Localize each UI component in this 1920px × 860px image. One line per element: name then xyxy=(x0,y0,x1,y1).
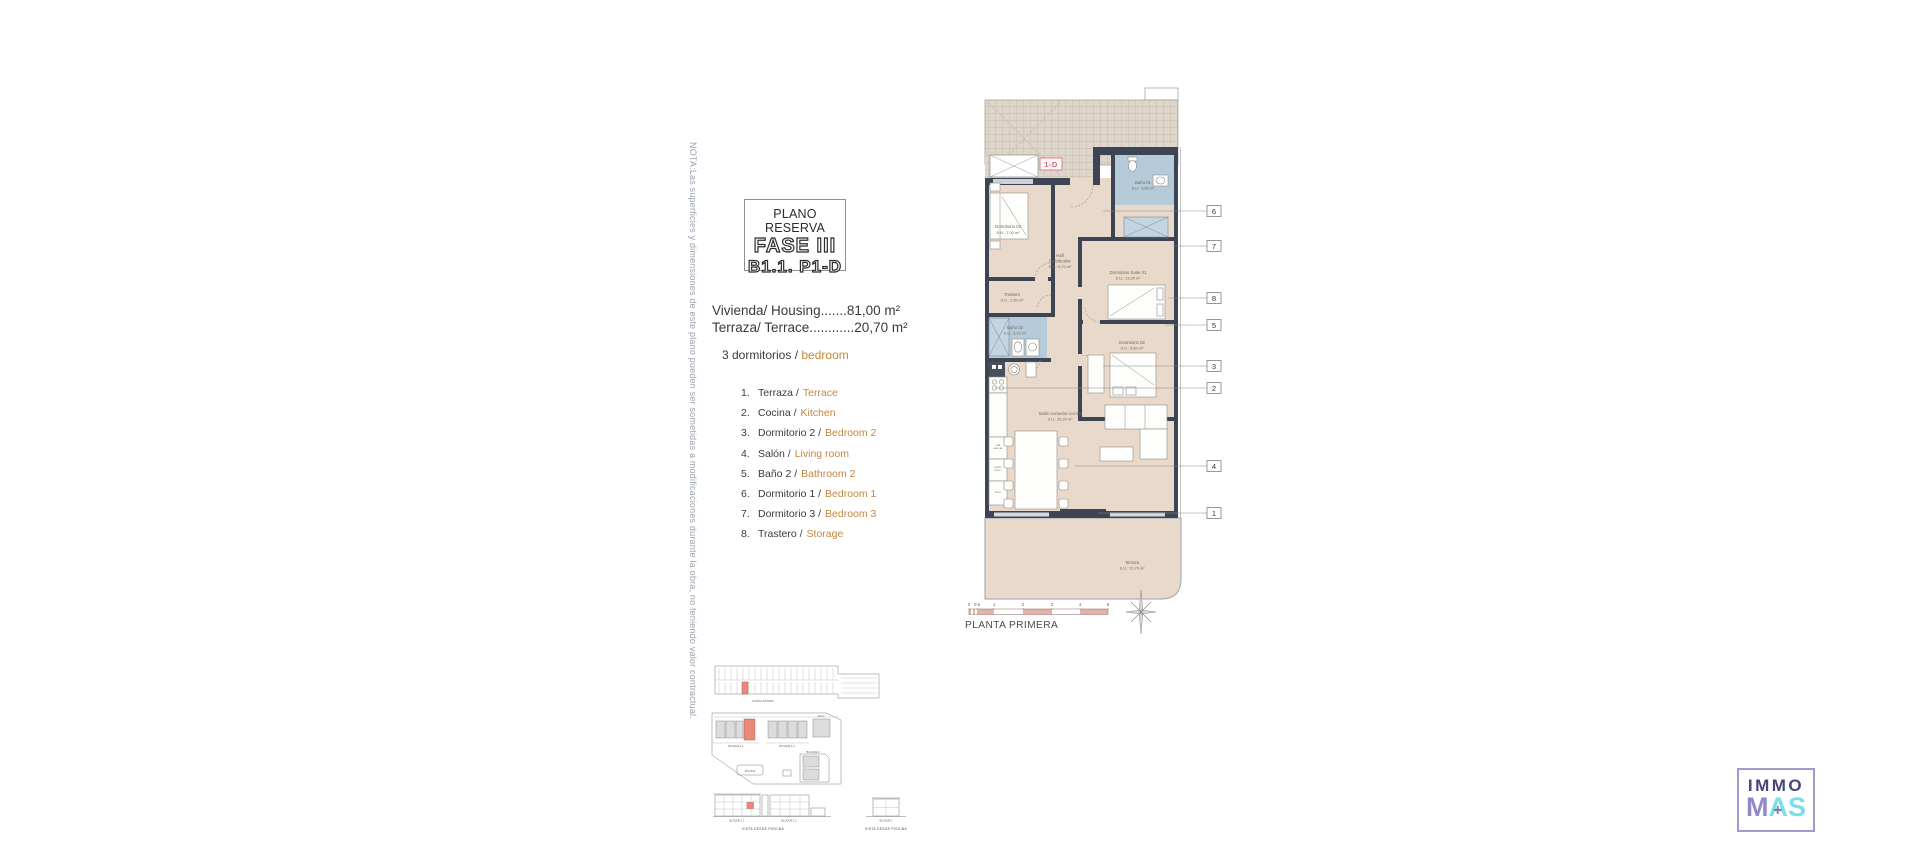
legend-item: 7.Dormitorio 3 /Bedroom 3 xyxy=(741,508,876,528)
svg-text:S.U.: 7,00 m²: S.U.: 7,00 m² xyxy=(997,230,1021,235)
svg-text:LAVA: LAVA xyxy=(996,444,1001,447)
svg-text:1: 1 xyxy=(993,602,996,607)
svg-text:0: 0 xyxy=(968,602,971,607)
svg-text:6: 6 xyxy=(1212,207,1216,216)
svg-text:Trastero: Trastero xyxy=(1004,292,1020,297)
svg-text:3: 3 xyxy=(1212,362,1216,371)
disclaimer-note: NOTA:Las superficies y dimensiones de es… xyxy=(688,142,698,742)
svg-text:Baño 02: Baño 02 xyxy=(1007,325,1024,330)
svg-text:HORNO: HORNO xyxy=(994,467,1002,469)
svg-text:Terraza: Terraza xyxy=(1125,560,1140,565)
logo-plus-icon: + xyxy=(1773,798,1782,823)
svg-text:Dormitorio 02: Dormitorio 02 xyxy=(1119,340,1145,345)
svg-text:S.U.: 13,20 m²: S.U.: 13,20 m² xyxy=(1115,276,1141,281)
title-block: PLANO RESERVA FASE III B1.1. P1-D xyxy=(744,199,846,271)
legend-item: 1.Terraza /Terrace xyxy=(741,387,876,407)
svg-text:2: 2 xyxy=(1022,602,1025,607)
svg-text:VISTA DESDE PISCINA: VISTA DESDE PISCINA xyxy=(865,827,908,831)
immomas-logo: IMMO MAS + xyxy=(1737,768,1815,832)
svg-text:S.U.: 2,50 m²: S.U.: 2,50 m² xyxy=(1001,298,1025,303)
svg-text:BLOQUE 1.1: BLOQUE 1.1 xyxy=(728,744,744,748)
bedroom2-furniture xyxy=(1088,353,1156,397)
svg-text:Hall: Hall xyxy=(1056,253,1063,258)
elevation-block-2: BLOQUE 2 VISTA DESDE PISCINA xyxy=(865,798,908,831)
legend-item: 6.Dormitorio 1 /Bedroom 1 xyxy=(741,488,876,508)
room-legend: 1.Terraza /Terrace 2.Cocina /Kitchen 3.D… xyxy=(741,387,876,549)
svg-text:BLOQUE 2: BLOQUE 2 xyxy=(880,819,894,823)
svg-text:BLOQUE 1.2: BLOQUE 1.2 xyxy=(781,819,797,823)
scale-bar: 0 0.5 1 2 3 4 5 xyxy=(968,602,1110,615)
svg-text:MICRO: MICRO xyxy=(995,470,1002,472)
svg-text:Dormitorio 03: Dormitorio 03 xyxy=(995,224,1021,229)
svg-text:BLOQUE 2: BLOQUE 2 xyxy=(807,750,821,754)
floor-label: PLANTA PRIMERA xyxy=(965,620,1058,631)
svg-text:S.U.: 3,10 m²: S.U.: 3,10 m² xyxy=(1004,331,1028,336)
svg-text:2: 2 xyxy=(1212,384,1216,393)
svg-text:3: 3 xyxy=(1051,602,1054,607)
svg-text:S.U.: 8,60 m²: S.U.: 8,60 m² xyxy=(1121,346,1145,351)
elevation-blocks-1: BLOQUE 1.1 BLOQUE 1.2 VISTA DESDE PISCIN… xyxy=(713,794,831,831)
unit-tag: 1-D xyxy=(1040,158,1062,170)
svg-text:1: 1 xyxy=(1212,509,1216,518)
svg-text:PISCINA: PISCINA xyxy=(745,769,756,773)
suite-furniture xyxy=(1108,285,1165,319)
legend-item: 4.Salón /Living room xyxy=(741,448,876,468)
bedrooms-line: 3 dormitorios / bedroom xyxy=(722,348,849,362)
svg-text:4: 4 xyxy=(1079,602,1082,607)
svg-text:S.U.: 26,20 m²: S.U.: 26,20 m² xyxy=(1047,417,1073,422)
svg-text:Baño 01: Baño 01 xyxy=(1135,180,1152,185)
floor-plan: 1-D xyxy=(960,85,1245,645)
svg-text:8: 8 xyxy=(1212,294,1216,303)
svg-text:VAJILLAS: VAJILLAS xyxy=(994,447,1004,450)
svg-text:Dormitorio Suite 01: Dormitorio Suite 01 xyxy=(1110,270,1147,275)
svg-text:BLOQUE 1.2: BLOQUE 1.2 xyxy=(779,744,795,748)
site-plans: PLANTA SÓTANO BLOQUE 1.1 BLOQUE 1.2 VILL… xyxy=(703,658,923,843)
svg-text:0.5: 0.5 xyxy=(974,602,980,607)
svg-text:7: 7 xyxy=(1212,242,1216,251)
svg-text:S.U.: 6,70 m²: S.U.: 6,70 m² xyxy=(1049,264,1073,269)
legend-item: 2.Cocina /Kitchen xyxy=(741,407,876,427)
legend-item: 3.Dormitorio 2 /Bedroom 2 xyxy=(741,427,876,447)
skylight xyxy=(990,155,1038,177)
svg-text:S.U.: 3,68 m²: S.U.: 3,68 m² xyxy=(1132,186,1156,191)
surface-areas: Vivienda/ Housing.......81,00 m² Terraza… xyxy=(712,303,908,336)
svg-text:VILLA: VILLA xyxy=(817,714,824,718)
svg-text:FRIGO: FRIGO xyxy=(995,492,1002,494)
terrace-floor xyxy=(985,518,1181,599)
svg-text:PLANTA SÓTANO: PLANTA SÓTANO xyxy=(752,698,773,703)
bedroom3-furniture xyxy=(990,183,1028,249)
plan-sheet: NOTA:Las superficies y dimensiones de es… xyxy=(0,0,1920,860)
highlighted-unit xyxy=(744,719,755,740)
housing-area: Vivienda/ Housing.......81,00 m² xyxy=(712,303,908,320)
svg-text:5: 5 xyxy=(1212,321,1216,330)
terrace-area: Terraza/ Terrace............20,70 m² xyxy=(712,320,908,337)
svg-text:Distribuidor: Distribuidor xyxy=(1049,259,1071,264)
title-unit: B1.1. P1-D xyxy=(745,257,845,276)
svg-text:5: 5 xyxy=(1107,602,1110,607)
svg-text:VISTA DESDE PISCINA: VISTA DESDE PISCINA xyxy=(742,827,785,831)
svg-text:Salón-comedor-cocina: Salón-comedor-cocina xyxy=(1039,411,1083,416)
logo-mas: MAS + xyxy=(1746,795,1806,820)
title-phase: FASE III xyxy=(745,236,845,257)
basement-plan: PLANTA SÓTANO xyxy=(715,666,879,703)
site-map: BLOQUE 1.1 BLOQUE 1.2 VILLA BLOQUE 2 PIS… xyxy=(712,713,841,784)
svg-text:S.U.: 20,70 m²: S.U.: 20,70 m² xyxy=(1119,566,1145,571)
title-kicker: PLANO RESERVA xyxy=(745,207,845,235)
legend-item: 5.Baño 2 /Bathroom 2 xyxy=(741,468,876,488)
legend-item: 8.Trastero /Storage xyxy=(741,528,876,548)
svg-text:BLOQUE 1.1: BLOQUE 1.1 xyxy=(729,819,745,823)
svg-text:4: 4 xyxy=(1212,462,1216,471)
svg-text:1-D: 1-D xyxy=(1044,160,1058,169)
